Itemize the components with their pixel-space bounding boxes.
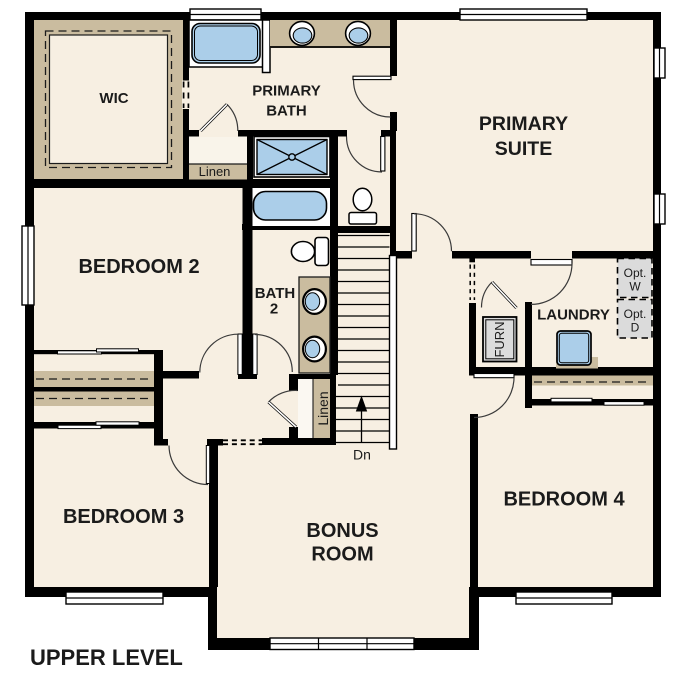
svg-text:W: W: [629, 280, 641, 294]
svg-text:BATH: BATH: [266, 103, 307, 120]
svg-text:FURN: FURN: [492, 321, 507, 357]
svg-text:UPPER LEVEL: UPPER LEVEL: [30, 645, 183, 670]
svg-text:BEDROOM 3: BEDROOM 3: [63, 506, 184, 528]
svg-text:BATH: BATH: [255, 285, 296, 302]
svg-text:LAUNDRY: LAUNDRY: [537, 307, 610, 324]
svg-text:BEDROOM 4: BEDROOM 4: [503, 489, 625, 511]
svg-text:BONUS: BONUS: [306, 520, 378, 542]
svg-text:2: 2: [270, 301, 278, 318]
svg-text:Dn: Dn: [353, 447, 371, 463]
svg-text:PRIMARY: PRIMARY: [479, 113, 568, 135]
svg-text:Linen: Linen: [315, 391, 331, 425]
svg-text:WIC: WIC: [99, 90, 128, 107]
svg-text:Opt.: Opt.: [624, 307, 647, 321]
svg-text:Opt.: Opt.: [624, 266, 647, 280]
svg-text:PRIMARY: PRIMARY: [252, 83, 321, 100]
svg-text:BEDROOM 2: BEDROOM 2: [78, 256, 199, 278]
svg-text:SUITE: SUITE: [495, 138, 552, 160]
svg-text:Linen: Linen: [199, 164, 231, 179]
svg-text:ROOM: ROOM: [311, 544, 373, 566]
svg-text:D: D: [631, 321, 640, 335]
